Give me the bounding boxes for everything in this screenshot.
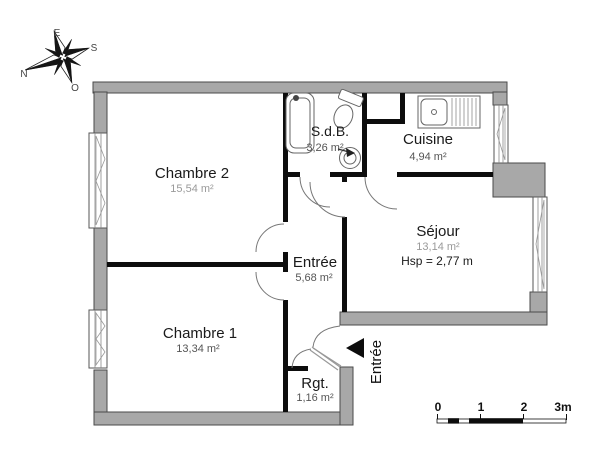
ceiling-height-sejour: Hsp = 2,77 m — [401, 254, 473, 268]
scale-tick-3: 3m — [554, 400, 571, 414]
wall-cuisine-sejour — [397, 172, 493, 177]
wall-hall-lower — [283, 300, 288, 412]
area-entree: 5,68 m² — [295, 272, 333, 284]
compass-letter-o: O — [71, 83, 79, 94]
label-chambre1: Chambre 1 — [163, 325, 237, 342]
window-chambre1 — [89, 310, 107, 368]
area-chambre2: 15,54 m² — [170, 183, 214, 195]
wall-chambre-divider — [107, 262, 283, 267]
door-chambre1 — [256, 272, 284, 300]
wall-hall-top-a — [288, 172, 300, 177]
wall-left-b — [94, 228, 107, 310]
label-sejour: Séjour — [416, 223, 459, 240]
entrance-arrow-icon — [346, 338, 364, 358]
door-entrance — [313, 326, 341, 366]
wall-sejour-bottom — [340, 312, 547, 325]
scale-tick-2: 2 — [521, 400, 528, 414]
label-chambre2: Chambre 2 — [155, 165, 229, 182]
scale-tick-1: 1 — [478, 400, 485, 414]
wall-entrance-side — [340, 367, 353, 425]
label-rgt: Rgt. — [301, 375, 329, 392]
wall-sejour-left-stub — [342, 172, 347, 182]
label-cuisine: Cuisine — [403, 131, 453, 148]
area-rgt: 1,16 m² — [296, 392, 334, 404]
floor-plan-page: N E S O — [0, 0, 600, 450]
door-sejour — [310, 182, 345, 217]
scale-bar: 0 1 2 3m — [435, 400, 572, 424]
wall-rgt-top — [288, 366, 308, 371]
compass-letter-e: E — [54, 28, 61, 39]
floor-plan-drawing: N E S O — [0, 0, 600, 450]
compass-letter-s: S — [91, 43, 98, 54]
wall-sdb-right — [362, 93, 367, 177]
wall-top-right-corner — [493, 92, 507, 105]
kitchen-sink — [418, 96, 480, 128]
wall-bottom — [94, 412, 353, 425]
window-chambre2 — [89, 133, 107, 228]
window-cuisine — [494, 105, 508, 163]
scale-tick-0: 0 — [435, 400, 442, 414]
wall-hall-mid — [283, 252, 288, 272]
compass-rose: N E S O — [16, 23, 97, 96]
wall-left-a — [94, 92, 107, 133]
compass-letter-n: N — [20, 69, 27, 80]
wall-shaft-bottom — [362, 119, 405, 124]
area-sejour: 13,14 m² — [416, 241, 460, 253]
entrance-direction-label: Entrée — [368, 340, 385, 384]
window-sejour — [533, 197, 547, 292]
area-sdb: 3,26 m² — [306, 142, 344, 154]
door-sdb — [300, 177, 330, 207]
area-cuisine: 4,94 m² — [409, 151, 447, 163]
label-entree: Entrée — [293, 254, 337, 271]
wall-sejour-left — [342, 217, 347, 312]
area-chambre1: 13,34 m² — [176, 343, 220, 355]
door-chambre2 — [256, 224, 284, 252]
door-cuisine — [365, 177, 397, 209]
label-sdb: S.d.B. — [311, 123, 349, 139]
wall-top — [93, 82, 507, 93]
wall-right-jog — [493, 163, 545, 197]
